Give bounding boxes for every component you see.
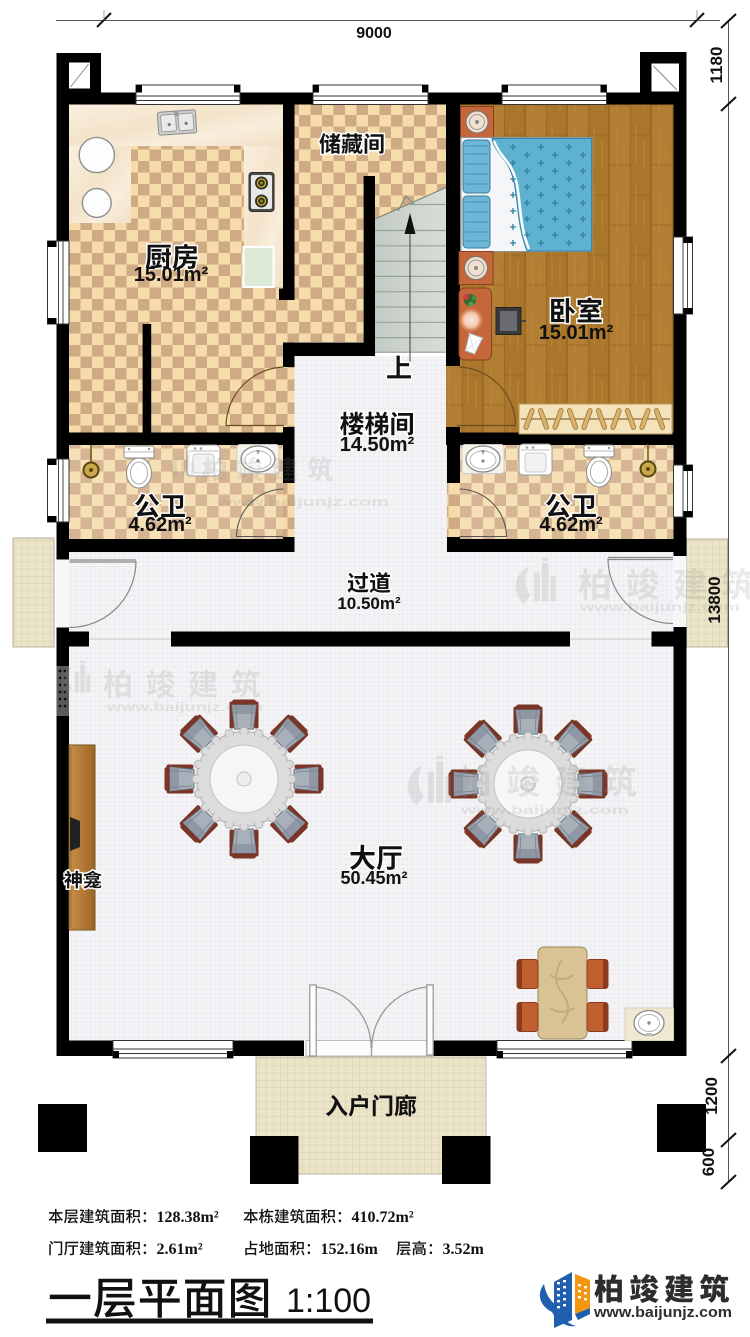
svg-text:9000: 9000: [356, 25, 392, 42]
svg-text:600: 600: [699, 1148, 718, 1176]
svg-text:1200: 1200: [702, 1077, 721, 1115]
svg-text:410.72m²: 410.72m²: [352, 1209, 414, 1226]
svg-text:14.50m²: 14.50m²: [340, 434, 415, 456]
svg-text:4.62m²: 4.62m²: [128, 514, 192, 536]
svg-text:128.38m²: 128.38m²: [157, 1209, 219, 1226]
svg-text:50.45m²: 50.45m²: [340, 868, 407, 888]
svg-text:4.62m²: 4.62m²: [539, 514, 603, 536]
svg-text:www.baijunjz.com: www.baijunjz.com: [459, 803, 629, 817]
svg-text:152.16m: 152.16m: [321, 1241, 379, 1258]
svg-text:1180: 1180: [707, 47, 726, 84]
svg-text:www.baijunjz.com: www.baijunjz.com: [105, 700, 263, 714]
svg-text:1:100: 1:100: [286, 1282, 371, 1320]
svg-text:15.01m²: 15.01m²: [539, 322, 614, 344]
svg-text:3.52m: 3.52m: [443, 1241, 485, 1258]
svg-text:www.baijunjz.com: www.baijunjz.com: [593, 1304, 732, 1321]
svg-text:13800: 13800: [705, 576, 724, 623]
svg-text:15.01m²: 15.01m²: [134, 264, 209, 286]
svg-text:10.50m²: 10.50m²: [337, 594, 401, 613]
svg-text:2.61m²: 2.61m²: [157, 1241, 203, 1258]
svg-text:www.baijunjz.com: www.baijunjz.com: [215, 495, 389, 509]
